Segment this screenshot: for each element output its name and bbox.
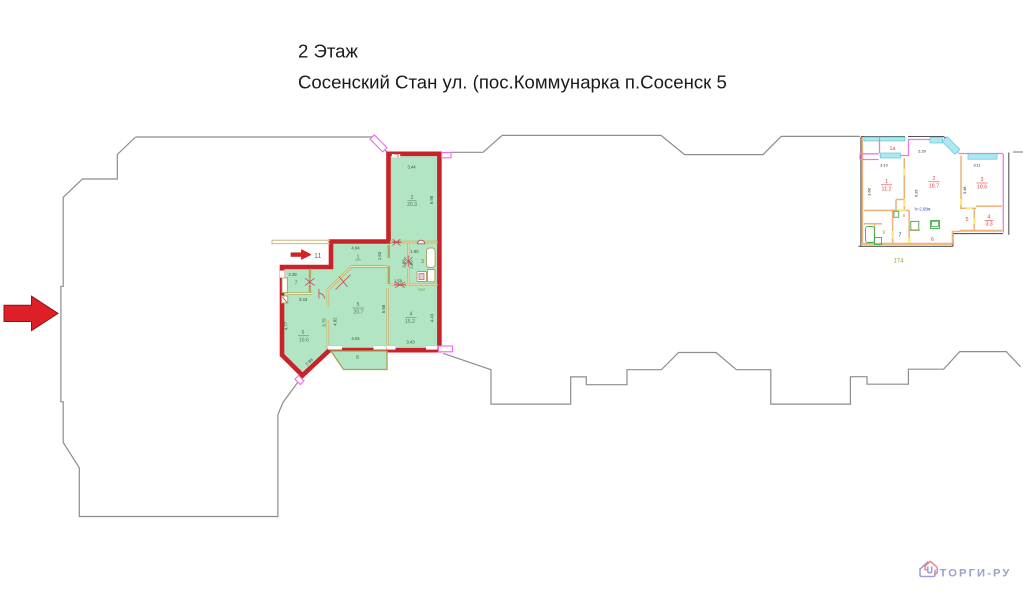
svg-text:2: 2 [933, 176, 936, 182]
svg-text:4.04: 4.04 [351, 336, 360, 341]
svg-text:11.2: 11.2 [882, 186, 892, 192]
svg-text:3: 3 [981, 177, 984, 183]
svg-text:1.63: 1.63 [377, 251, 382, 260]
svg-text:9: 9 [882, 230, 885, 236]
svg-text:h=2.68м: h=2.68м [915, 207, 931, 212]
svg-text:1: 1 [885, 179, 888, 185]
svg-text:6: 6 [931, 237, 934, 243]
svg-text:4: 4 [410, 312, 413, 318]
svg-text:11: 11 [314, 251, 321, 260]
svg-text:1а: 1а [890, 146, 896, 152]
svg-text:3.3: 3.3 [985, 222, 992, 228]
svg-text:2: 2 [411, 195, 414, 201]
svg-text:2.39: 2.39 [288, 272, 297, 277]
svg-text:174: 174 [893, 259, 904, 265]
svg-text:8: 8 [356, 355, 359, 361]
svg-text:7: 7 [899, 233, 902, 239]
svg-text:2.88: 2.88 [402, 259, 407, 268]
svg-text:3.10: 3.10 [880, 164, 887, 168]
svg-text:4.04: 4.04 [351, 246, 360, 251]
svg-text:4.77: 4.77 [283, 321, 288, 330]
svg-text:3.11: 3.11 [973, 164, 980, 168]
svg-text:3.68: 3.68 [868, 188, 872, 195]
svg-text:3.48: 3.48 [963, 187, 967, 194]
svg-text:5.98: 5.98 [429, 195, 434, 204]
svg-text:3.44: 3.44 [407, 165, 416, 170]
svg-text:2.29: 2.29 [918, 149, 925, 153]
svg-text:5: 5 [966, 217, 969, 223]
svg-text:4.82: 4.82 [333, 317, 338, 326]
svg-text:3.43: 3.43 [299, 297, 308, 302]
svg-text:5: 5 [357, 302, 360, 308]
svg-text:8: 8 [903, 213, 906, 219]
svg-text:2 Этаж: 2 Этаж [298, 41, 359, 62]
svg-text:ТОРГИ-РУ: ТОРГИ-РУ [940, 568, 1012, 580]
svg-text:7: 7 [295, 281, 298, 287]
svg-text:3: 3 [421, 259, 424, 265]
svg-text:1.59: 1.59 [394, 279, 403, 284]
svg-text:4: 4 [988, 215, 991, 221]
svg-text:3.43: 3.43 [406, 339, 415, 344]
svg-text:6.29: 6.29 [915, 190, 919, 197]
svg-text:туал: туал [418, 288, 426, 292]
svg-text:6: 6 [302, 330, 305, 336]
svg-text:18.7: 18.7 [929, 183, 939, 189]
svg-text:20.3: 20.3 [407, 202, 417, 208]
svg-text:5.68: 5.68 [381, 304, 386, 313]
svg-text:15.2: 15.2 [405, 319, 415, 325]
svg-text:10.6: 10.6 [977, 185, 987, 191]
svg-text:20.7: 20.7 [354, 310, 364, 316]
svg-text:2.86: 2.86 [409, 260, 414, 269]
svg-text:1: 1 [357, 255, 360, 261]
svg-text:4.43: 4.43 [429, 313, 434, 322]
svg-text:Сосенский Стан ул. (пос.Коммун: Сосенский Стан ул. (пос.Коммунарка п.Сос… [298, 72, 727, 93]
svg-text:3.75: 3.75 [321, 318, 326, 327]
svg-text:16.6: 16.6 [299, 338, 309, 344]
svg-text:1.90: 1.90 [410, 249, 419, 254]
